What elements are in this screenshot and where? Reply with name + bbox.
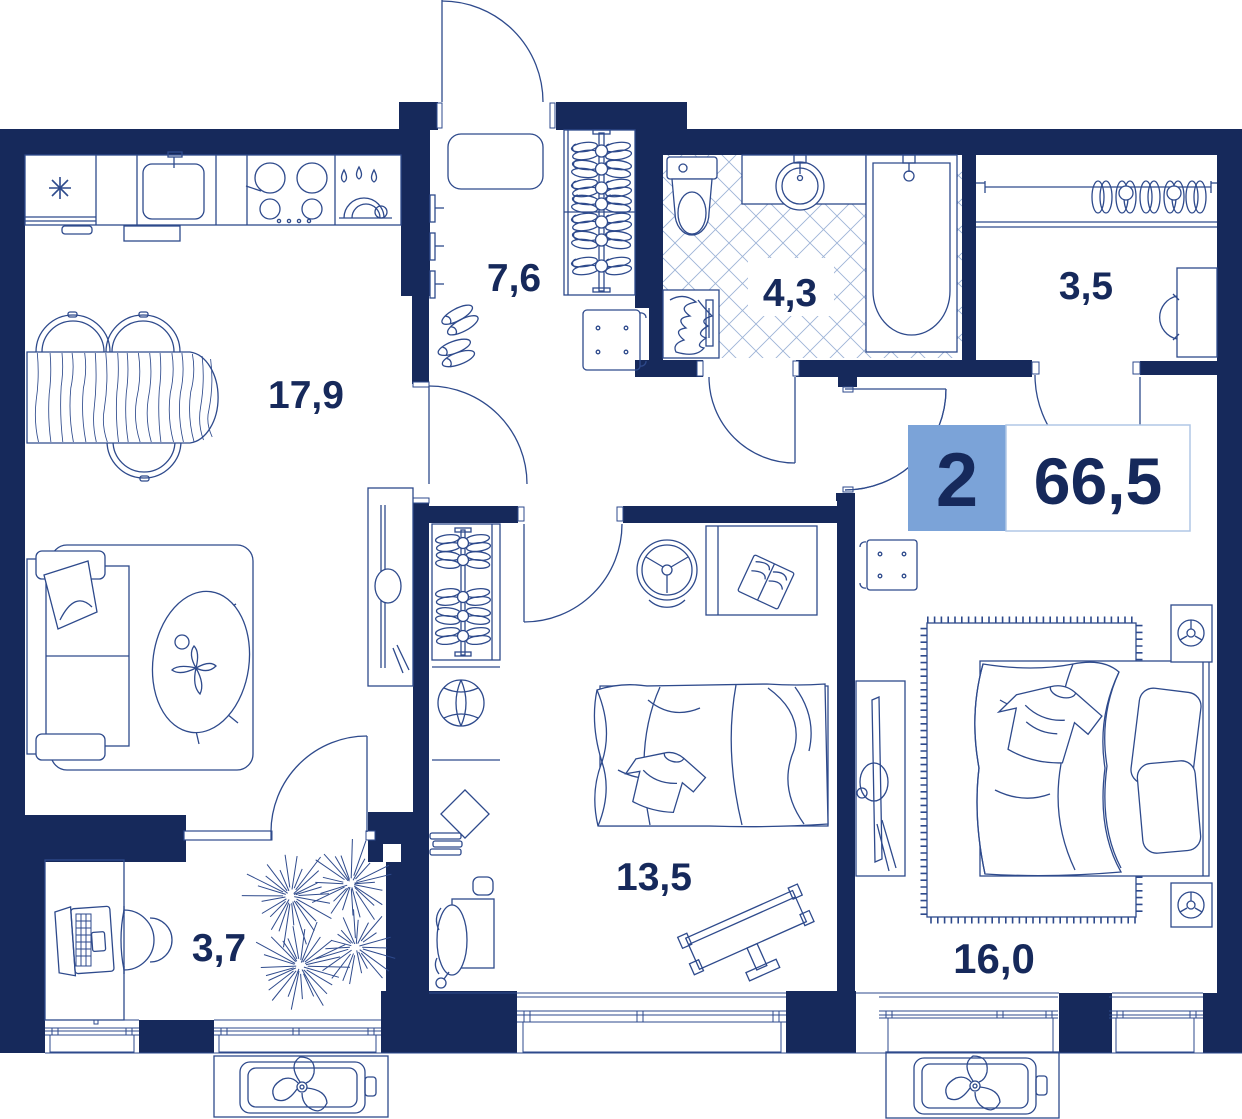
svg-text:16,0: 16,0	[953, 935, 1035, 982]
svg-text:3,5: 3,5	[1059, 265, 1113, 308]
svg-text:4,3: 4,3	[763, 272, 817, 315]
svg-text:13,5: 13,5	[616, 856, 692, 899]
svg-text:66,5: 66,5	[1034, 444, 1162, 518]
svg-text:2: 2	[936, 438, 978, 523]
svg-text:17,9: 17,9	[268, 374, 344, 417]
svg-text:3,7: 3,7	[192, 927, 246, 970]
svg-text:7,6: 7,6	[487, 257, 541, 300]
